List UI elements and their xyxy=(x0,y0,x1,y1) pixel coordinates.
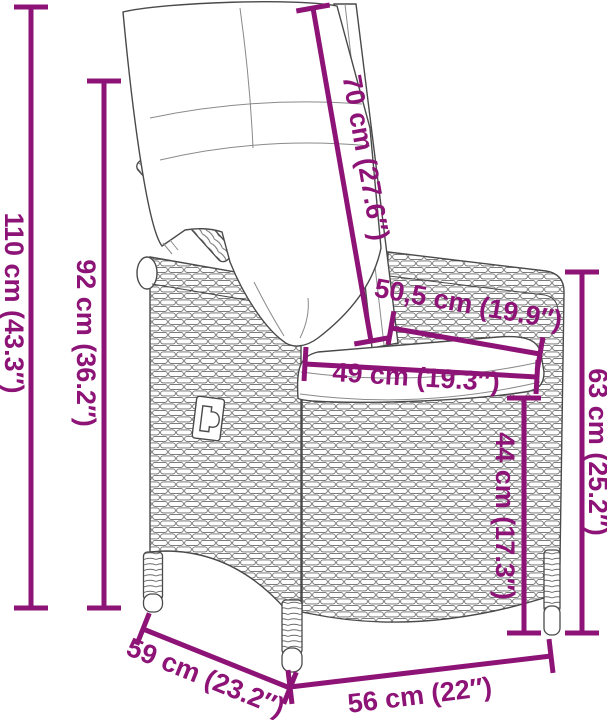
dim-tick-left xyxy=(304,347,306,381)
dim-backrest-height: 92 cm (36.2″) xyxy=(71,81,121,608)
dimension-diagram: 110 cm (43.3″) 92 cm (36.2″) 70 cm (27.6… xyxy=(0,0,607,720)
leg-front-left-foot xyxy=(282,648,302,672)
dim-label-seat-height: 44 cm (17.3″) xyxy=(490,432,520,600)
dim-overall-depth: 59 cm (23.2″) xyxy=(122,613,296,720)
dim-overall-width: 56 cm (22″) xyxy=(288,639,553,719)
leg-front-right-foot xyxy=(544,606,560,635)
leg-front-right xyxy=(544,550,560,635)
leg-back-left-foot xyxy=(144,594,163,612)
dim-tick-right xyxy=(536,360,538,394)
dim-total-height: 110 cm (43.3″) xyxy=(0,7,48,608)
dim-tick-right xyxy=(549,639,553,673)
leg-back-left xyxy=(144,552,163,612)
dim-label-armrest-height: 63 cm (25.2″) xyxy=(583,368,607,536)
chair-diagram-canvas: 110 cm (43.3″) 92 cm (36.2″) 70 cm (27.6… xyxy=(0,0,607,720)
leg-front-left xyxy=(282,600,302,672)
dim-label-total-height: 110 cm (43.3″) xyxy=(0,212,29,393)
recline-lever-plate xyxy=(192,396,225,441)
dim-armrest-height: 63 cm (25.2″) xyxy=(565,272,607,633)
dim-label-backrest-height: 92 cm (36.2″) xyxy=(71,259,101,427)
dim-tick-left xyxy=(288,670,292,704)
